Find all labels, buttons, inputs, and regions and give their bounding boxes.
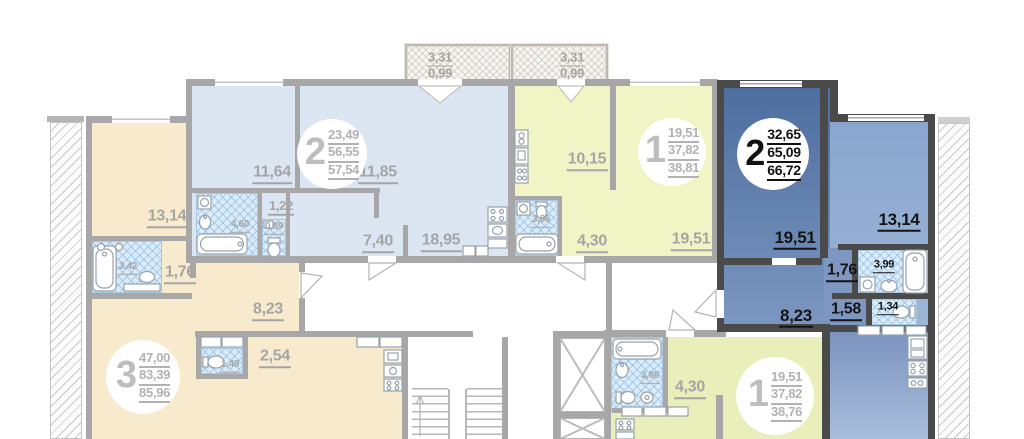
usable-area: 37,82 — [668, 143, 699, 160]
apartment-summary-badge-selected[interactable]: 2 32,65 65,09 66,72 — [737, 118, 809, 190]
wall — [186, 256, 718, 263]
window — [112, 116, 170, 123]
wall-dark — [832, 293, 928, 299]
door-opening — [717, 290, 724, 318]
room-area-label: 8,23 — [252, 301, 284, 321]
wall — [663, 337, 668, 413]
door-opening — [772, 258, 796, 265]
usable-area: 83,39 — [139, 368, 170, 385]
apartment-summary-badge-e[interactable]: 1 19,51 37,82 38,76 — [736, 357, 814, 435]
wall-dark — [724, 258, 772, 265]
total-area: 66,72 — [767, 163, 801, 181]
door-opening — [368, 256, 396, 263]
room-area-label: 3,42 — [118, 262, 138, 275]
wall — [86, 293, 192, 299]
bathroom-tile-b — [515, 200, 558, 256]
apartment-summary-badge-a[interactable]: 2 23,49 56,55 57,54 — [297, 119, 367, 189]
wall — [92, 236, 192, 241]
floor-plan: 3,310,99 3,310,99 11,64 11,85 1,22 4,60 … — [0, 0, 1024, 439]
wall — [553, 331, 611, 338]
room-area-label: 1,22 — [268, 199, 294, 216]
balcony-area-label: 3,310,99 — [559, 51, 585, 82]
room-area-label: 13,14 — [147, 208, 188, 228]
room-area-label: 3,86 — [531, 215, 551, 228]
living-area: 47,00 — [139, 351, 170, 368]
apartment-rooms-count: 1 — [645, 129, 665, 172]
balcony-left — [405, 44, 511, 83]
room-area-label: 4,30 — [576, 233, 608, 253]
room-area-label: 1,34 — [877, 301, 899, 315]
wall-dark — [796, 258, 822, 265]
wall — [508, 85, 515, 263]
room-area-label: 11,64 — [252, 164, 292, 184]
wall — [196, 337, 201, 377]
door-opening — [299, 272, 305, 298]
living-area: 19,51 — [668, 126, 699, 143]
apartment-rooms-count: 1 — [748, 373, 768, 416]
total-area: 85,96 — [139, 386, 170, 403]
elevator-shaft-1 — [560, 338, 605, 412]
wall — [374, 188, 379, 218]
stairs-flight-left — [412, 388, 448, 439]
wall — [553, 331, 560, 439]
wall — [604, 330, 726, 337]
total-area: 57,54 — [328, 163, 359, 180]
room-area-label: 8,23 — [779, 307, 813, 328]
room-area-label: 1,58 — [830, 301, 862, 321]
wall-dark — [717, 80, 724, 290]
wall — [295, 85, 300, 190]
wall — [86, 116, 92, 439]
wall — [195, 331, 473, 337]
wall — [716, 395, 723, 439]
usable-area: 56,55 — [328, 145, 359, 162]
wall — [515, 196, 560, 200]
apartment-rooms-count: 3 — [116, 354, 136, 397]
wall-dark — [826, 325, 928, 332]
room-area-label: 1,49 — [220, 360, 240, 373]
room-area-label: 10,15 — [567, 151, 608, 171]
balcony-area-label: 3,310,99 — [427, 51, 453, 82]
room-area-label: 1,76 — [826, 262, 858, 282]
living-area: 19,51 — [771, 370, 802, 387]
room-area-label: 3,86 — [640, 371, 660, 384]
wall — [403, 225, 408, 257]
living-area: 23,49 — [328, 128, 359, 145]
room-area-label: 4,60 — [230, 220, 250, 233]
wall — [558, 196, 562, 256]
apartment-rooms-count: 2 — [745, 132, 764, 174]
room-area-label: 18,95 — [421, 232, 462, 252]
wall — [196, 374, 248, 379]
section-boundary-hatch-right — [938, 123, 970, 439]
total-area: 38,76 — [771, 405, 802, 422]
door-opening — [556, 256, 584, 263]
wall-dark — [717, 324, 830, 332]
room-area-label: 4,30 — [674, 379, 706, 399]
wall — [243, 337, 248, 377]
apartment-3room-left-region-kitchen[interactable] — [300, 337, 402, 439]
room-area-label: 3,99 — [873, 259, 895, 273]
room-area-label: 1,76 — [164, 264, 196, 284]
room-area-label: 7,40 — [362, 233, 394, 253]
window — [740, 81, 802, 87]
apartment-2room-selected-kitchen-region[interactable] — [830, 325, 928, 439]
apartment-summary-badge-d[interactable]: 3 47,00 83,39 85,96 — [106, 340, 180, 414]
wall — [612, 408, 668, 413]
wall — [604, 330, 611, 439]
living-area: 32,65 — [767, 127, 801, 145]
stairs-flight-right — [467, 388, 503, 439]
wall — [606, 263, 612, 331]
usable-area: 37,82 — [771, 387, 802, 404]
apartment-summary-badge-b[interactable]: 1 19,51 37,82 38,81 — [638, 118, 706, 186]
room-area-label: 0,89 — [264, 222, 284, 235]
stairs-center-rail — [448, 389, 467, 439]
total-area: 38,81 — [668, 161, 699, 178]
wall-dark — [820, 87, 828, 258]
window — [630, 79, 700, 86]
room-area-label: 2,54 — [259, 348, 291, 368]
wall-dark — [822, 330, 830, 439]
wall — [258, 193, 262, 256]
usable-area: 65,09 — [767, 145, 801, 163]
elevator-shaft-2 — [560, 418, 605, 439]
wall — [402, 337, 408, 439]
section-boundary-hatch-left — [50, 122, 82, 439]
window — [215, 79, 283, 86]
room-area-label: 19,51 — [773, 229, 816, 250]
wall — [610, 85, 616, 190]
room-area-label: 19,51 — [671, 231, 712, 251]
wall-dark — [928, 114, 935, 439]
apartment-rooms-count: 2 — [305, 131, 325, 174]
window — [848, 115, 924, 121]
door-opening — [666, 330, 694, 337]
room-area-label: 13,14 — [877, 211, 920, 232]
